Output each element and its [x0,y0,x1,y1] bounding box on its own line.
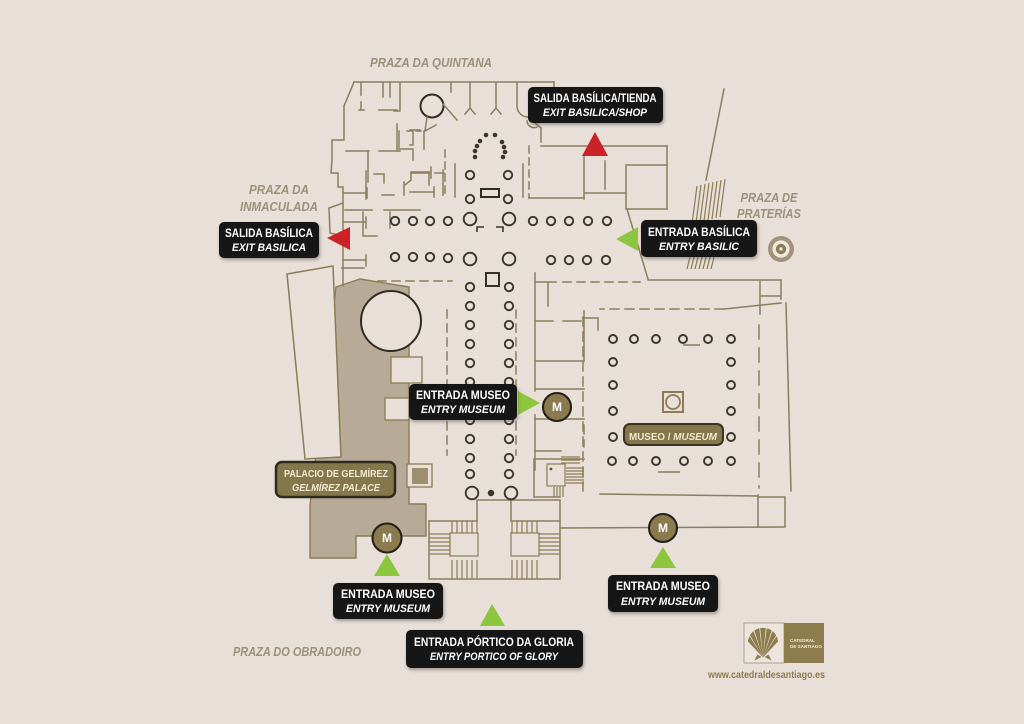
svg-text:INMACULADA: INMACULADA [240,199,318,214]
svg-text:GELMÍREZ PALACE: GELMÍREZ PALACE [292,481,381,494]
svg-text:ENTRY PORTICO OF GLORY: ENTRY PORTICO OF GLORY [430,651,559,663]
svg-text:DE SANTIAGO: DE SANTIAGO [790,644,822,649]
svg-text:PRAZA DO OBRADOIRO: PRAZA DO OBRADOIRO [233,644,361,659]
svg-text:PRAZA DA: PRAZA DA [249,182,309,197]
svg-text:EXIT BASILICA/SHOP: EXIT BASILICA/SHOP [543,107,648,119]
svg-text:SALIDA BASÍLICA/TIENDA: SALIDA BASÍLICA/TIENDA [534,92,657,105]
svg-text:PRATERÍAS: PRATERÍAS [737,206,801,221]
svg-text:MUSEO / MUSEUM: MUSEO / MUSEUM [629,431,717,443]
svg-text:ENTRY BASILIC: ENTRY BASILIC [659,241,740,253]
svg-text:EXIT BASILICA: EXIT BASILICA [232,242,306,254]
svg-text:PRAZA DA QUINTANA: PRAZA DA QUINTANA [370,55,492,70]
svg-text:CATEDRAL: CATEDRAL [790,638,815,643]
svg-text:www.catedraldesantiago.es: www.catedraldesantiago.es [707,669,825,681]
svg-text:ENTRADA MUSEO: ENTRADA MUSEO [616,581,710,593]
svg-text:M: M [382,531,392,545]
svg-text:ENTRY MUSEUM: ENTRY MUSEUM [346,603,431,615]
svg-text:ENTRY MUSEUM: ENTRY MUSEUM [421,404,506,416]
svg-text:ENTRADA MUSEO: ENTRADA MUSEO [416,390,510,402]
svg-text:PALACIO DE GELMÍREZ: PALACIO DE GELMÍREZ [284,467,389,480]
svg-text:SALIDA BASÍLICA: SALIDA BASÍLICA [225,227,313,240]
svg-text:ENTRY MUSEUM: ENTRY MUSEUM [621,596,706,608]
svg-text:M: M [552,400,562,414]
svg-text:ENTRADA MUSEO: ENTRADA MUSEO [341,589,435,601]
svg-text:PRAZA DE: PRAZA DE [741,190,798,205]
svg-text:ENTRADA PÓRTICO DA GLORIA: ENTRADA PÓRTICO DA GLORIA [414,636,574,649]
svg-text:M: M [658,521,668,535]
svg-text:ENTRADA BASÍLICA: ENTRADA BASÍLICA [648,226,750,239]
